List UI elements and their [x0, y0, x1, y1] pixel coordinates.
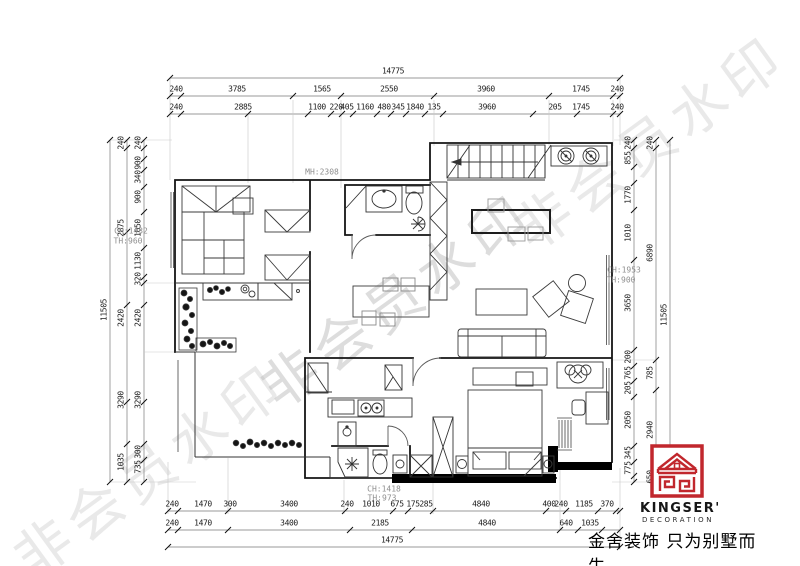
floorplan-canvas: 非会员水印 非会员水印 非会员水印: [0, 0, 800, 566]
secondary-walls: [175, 145, 545, 478]
dimension-lines: [110, 78, 670, 547]
thick-walls: [392, 446, 612, 483]
dimension-label: 6890: [646, 244, 655, 262]
dimension-label: 2940: [646, 421, 655, 439]
stove-burners-symbol: [551, 146, 607, 166]
desk-chair-symbol: [572, 400, 585, 415]
lamp-symbol: [458, 460, 467, 469]
wardrobe-symbols: [182, 186, 310, 280]
dimension-label: 2185: [371, 519, 389, 528]
bathroom-top-fixtures: [346, 182, 447, 300]
dimension-label: 1470: [194, 519, 212, 528]
plant-symbols: [179, 286, 302, 449]
dimension-label: 205: [624, 381, 633, 394]
dimension-label: 3960: [478, 103, 496, 112]
dimension-label: 1185: [575, 500, 593, 509]
ceiling-height-label-bottom: CH:1418: [367, 485, 401, 494]
dimension-label: 4840: [478, 519, 496, 528]
dimension-label: 240: [624, 136, 633, 149]
dimension-label: 14775: [382, 67, 404, 76]
dimension-label: 4840: [472, 500, 490, 509]
dimension-label: 1010: [624, 224, 633, 242]
dimension-label: 785: [646, 366, 655, 379]
bed-symbol: [456, 368, 554, 476]
dimension-label: 480: [377, 103, 390, 112]
cabinet-column-symbol: [430, 182, 447, 300]
dimension-label: 175: [406, 500, 419, 509]
dimension-label: 345: [391, 103, 404, 112]
dimension-label: 3400: [280, 500, 298, 509]
dimension-label: 240: [169, 103, 182, 112]
dimension-label: 765: [624, 366, 633, 379]
dimension-label: 2885: [234, 103, 252, 112]
dimension-label: 240: [169, 85, 182, 94]
kingser-logo-icon: [650, 444, 704, 498]
dimension-label: 370: [600, 500, 613, 509]
staircase-symbol: [447, 145, 551, 178]
dimension-label: 1160: [356, 103, 374, 112]
dimension-label: 3290: [134, 391, 143, 409]
dimension-label: 900: [134, 190, 143, 203]
sink-symbol: [372, 190, 396, 208]
dimension-label: 855: [624, 151, 633, 164]
dimension-label: 3785: [228, 85, 246, 94]
dimension-label: 1100: [308, 103, 326, 112]
dimension-label: 3650: [624, 294, 633, 312]
brand-subtitle: DECORATION: [640, 516, 716, 524]
dimension-label: 1130: [134, 252, 143, 270]
ceiling-height-label-left: CH:1432: [114, 227, 148, 236]
exhaust-fan-symbol: [411, 217, 425, 231]
island-counter-symbol: [472, 199, 550, 241]
bathroom-bottom-fixtures: [338, 417, 453, 477]
dimension-label: 1470: [194, 500, 212, 509]
dimension-label: 11505: [660, 304, 669, 326]
bed-bench-symbol: [473, 368, 547, 385]
dimension-label: 135: [427, 103, 440, 112]
desk-symbol: [572, 392, 608, 424]
dining-table-symbol: [353, 278, 429, 326]
dimension-label: 3960: [477, 85, 495, 94]
dimension-label: 3290: [117, 391, 126, 409]
dimension-label: 300: [134, 445, 143, 458]
dimension-label: 1840: [406, 103, 424, 112]
dimension-label: 240: [646, 136, 655, 149]
small-sink-symbol: [393, 455, 407, 473]
dimension-label: 240: [610, 103, 623, 112]
coffee-table-symbol: [476, 289, 527, 315]
planter-box-symbol: [557, 362, 603, 388]
dimension-label: 240: [340, 500, 353, 509]
dimension-label: 240: [610, 85, 623, 94]
dimension-label: 200: [624, 350, 633, 363]
dimension-label: 775: [624, 461, 633, 474]
dimension-label: 2420: [117, 309, 126, 327]
dimension-label: 1745: [572, 103, 590, 112]
dimension-label: 240: [117, 136, 126, 149]
brand-name: KINGSER': [640, 501, 716, 516]
dimension-label: 205: [548, 103, 561, 112]
toilet-symbol: [406, 192, 422, 214]
exhaust-fan-symbol: [345, 457, 359, 471]
side-table-symbol: [569, 275, 586, 292]
dimension-label: 2050: [624, 411, 633, 429]
dimension-label: 11505: [100, 299, 109, 321]
dimension-label: 345: [624, 446, 633, 459]
dimension-label: 2550: [380, 85, 398, 94]
dimension-label: 240: [165, 500, 178, 509]
dimension-label: 240: [554, 500, 567, 509]
kitchenette-symbols: [308, 363, 412, 446]
dimension-label: 3400: [280, 519, 298, 528]
dimension-label: 285: [419, 500, 432, 509]
brand-slogan: 金舍装饰 只为别墅而生。: [588, 527, 788, 566]
door-arcs: [352, 235, 441, 446]
dimension-label: 1745: [572, 85, 590, 94]
dimension-label: 900: [134, 156, 143, 169]
dimension-label: 735: [134, 460, 143, 473]
counter-sink-symbol: [203, 283, 300, 300]
dimension-label: 2420: [134, 309, 143, 327]
dimension-label: 340: [134, 170, 143, 183]
dimension-label: 405: [340, 103, 353, 112]
ceiling-height-label-right: CH:1953: [607, 266, 641, 275]
top-height-label-bottom: TH:973: [368, 494, 397, 503]
dimension-label: 240: [165, 519, 178, 528]
dimension-label: 1565: [313, 85, 331, 94]
dimension-label: 1035: [117, 453, 126, 471]
dimension-label: 240: [134, 136, 143, 149]
dimension-label: 1770: [624, 186, 633, 204]
dimension-label: 14775: [381, 536, 403, 545]
mezzanine-height-label: MH:2308: [305, 168, 339, 177]
armchair-symbols: [533, 275, 594, 324]
dimension-label: 640: [559, 519, 572, 528]
top-height-label-left: TH:960: [114, 237, 143, 246]
toilet-symbol: [373, 454, 387, 474]
top-height-label-right: TH:900: [607, 276, 636, 285]
dimension-label: 300: [223, 500, 236, 509]
dimension-label: 320: [134, 272, 143, 285]
sofa-symbol: [458, 329, 546, 357]
